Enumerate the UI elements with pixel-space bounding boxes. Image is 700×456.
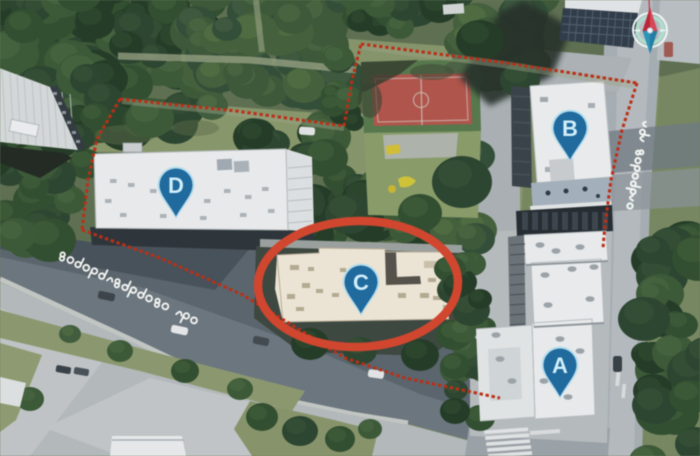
- svg-text:C: C: [353, 270, 369, 295]
- svg-text:B: B: [562, 116, 578, 141]
- svg-text:D: D: [168, 173, 184, 198]
- svg-text:A: A: [552, 353, 568, 378]
